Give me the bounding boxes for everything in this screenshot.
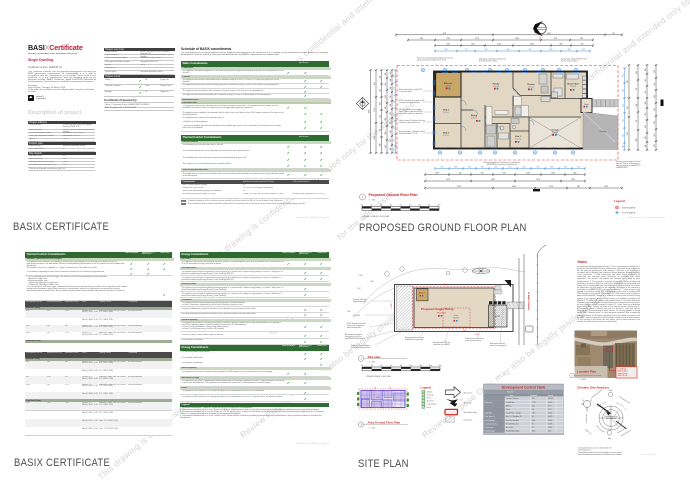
svg-text:4171: 4171 [443, 33, 447, 35]
svg-text:516: 516 [394, 139, 396, 142]
svg-text:1247: 1247 [554, 38, 558, 40]
svg-text:1 : 100: 1 : 100 [369, 428, 375, 430]
svg-text:1118: 1118 [446, 38, 450, 40]
svg-text:20.61 m2: 20.61 m2 [493, 86, 499, 88]
svg-text:344: 344 [385, 73, 387, 76]
svg-text:344: 344 [390, 104, 392, 107]
svg-text:4.0: 4.0 [532, 409, 534, 411]
svg-text:Drawing Template: Drawing Template [641, 453, 656, 456]
svg-text:1032: 1032 [435, 173, 439, 175]
svg-text:114.8: 114.8 [359, 275, 363, 277]
svg-text:387: 387 [390, 112, 392, 115]
svg-text:1 : 5000: 1 : 5000 [579, 379, 586, 381]
svg-text:14.4%: 14.4% [548, 427, 553, 429]
svg-text:4816: 4816 [547, 33, 551, 35]
svg-text:946: 946 [485, 49, 488, 51]
svg-text:Alfresco: Alfresco [444, 82, 453, 85]
svg-text:Hot Summer Sun: Hot Summer Sun [618, 395, 630, 404]
svg-text:301: 301 [623, 145, 625, 148]
svg-text:3.7%: 3.7% [548, 405, 552, 407]
svg-text:NOTE: Stormwater drain pipes a: NOTE: Stormwater drain pipes as laid [399, 99, 424, 102]
svg-text:516: 516 [654, 83, 656, 86]
svg-text:RL 114.86: RL 114.86 [353, 315, 360, 317]
svg-text:4m: 4m [380, 365, 383, 367]
svg-text:817: 817 [627, 106, 629, 109]
svg-text:1118: 1118 [446, 44, 450, 46]
svg-text:559: 559 [468, 167, 471, 169]
svg-text:PENNSYLVANIA ST: PENNSYLVANIA ST [528, 291, 531, 310]
svg-text:559: 559 [654, 121, 656, 124]
svg-text:SMOKE ALARM: SMOKE ALARM [622, 206, 636, 209]
svg-text:FFL 115.250: FFL 115.250 [437, 313, 446, 315]
svg-text:0.5: 0.5 [532, 416, 534, 418]
svg-text:Fence: Fence [427, 398, 432, 400]
svg-text:Storm flow: Storm flow [464, 402, 473, 405]
svg-text:5m: 5m [409, 204, 412, 206]
svg-text:1204: 1204 [497, 44, 501, 46]
svg-text:1.0%: 1.0% [548, 409, 552, 411]
svg-text:1032: 1032 [551, 173, 555, 175]
svg-text:Dining: Dining [471, 115, 478, 117]
svg-text:Bed 2: Bed 2 [443, 133, 449, 135]
svg-text:559: 559 [380, 89, 382, 92]
svg-text:1118: 1118 [374, 108, 376, 111]
svg-text:1m: 1m [370, 204, 373, 206]
svg-text:387: 387 [390, 95, 392, 98]
svg-text:559: 559 [645, 125, 647, 128]
svg-text:375: 375 [532, 398, 535, 400]
svg-text:559: 559 [394, 113, 396, 116]
svg-text:602: 602 [385, 132, 387, 135]
svg-text:Garage: Garage [552, 130, 560, 132]
svg-text:9.72 m2: 9.72 m2 [443, 135, 449, 137]
svg-text:946: 946 [529, 49, 532, 51]
svg-text:Paved area: Paved area [464, 418, 473, 421]
svg-text:Rainwater tank 3009L min: Rainwater tank 3009L min [433, 341, 451, 344]
svg-text:VISUAL SCALE 1:200 @A3: VISUAL SCALE 1:200 @A3 [366, 375, 392, 378]
svg-text:731: 731 [612, 33, 615, 35]
svg-text:Exterior: Exterior [507, 390, 514, 393]
svg-text:9am: 9am [608, 438, 612, 440]
svg-text:114.5: 114.5 [347, 311, 351, 313]
svg-text:559: 559 [380, 115, 382, 118]
svg-text:14m: 14m [419, 365, 423, 367]
svg-text:50.6%: 50.6% [548, 413, 553, 415]
svg-text:688: 688 [568, 49, 571, 51]
svg-text:114.8: 114.8 [443, 284, 447, 286]
svg-text:516: 516 [394, 75, 396, 78]
svg-text:602: 602 [495, 167, 498, 169]
svg-text:387: 387 [390, 130, 392, 133]
svg-text:387: 387 [645, 136, 647, 139]
svg-text:258: 258 [390, 72, 392, 75]
svg-text:2064: 2064 [515, 38, 519, 40]
svg-text:1118: 1118 [526, 173, 530, 175]
svg-text:387: 387 [385, 106, 387, 109]
svg-text:Refreshing fitting - 1.5 bagge: Refreshing fitting - 1.5 bagged in touch [399, 130, 425, 133]
svg-text:1978: 1978 [536, 179, 540, 181]
svg-text:Climatic Site Analysis: Climatic Site Analysis [577, 386, 609, 390]
svg-text:387: 387 [654, 144, 656, 147]
svg-text:114.6: 114.6 [370, 281, 374, 283]
svg-text:10m: 10m [409, 365, 413, 367]
svg-text:559: 559 [380, 102, 382, 105]
svg-text:645: 645 [636, 71, 638, 74]
svg-text:Porch: Porch [427, 406, 431, 409]
svg-text:18m: 18m [429, 365, 433, 367]
svg-text:946: 946 [507, 49, 510, 51]
svg-text:946: 946 [481, 173, 484, 175]
svg-text:Master Bed: Master Bed [567, 83, 579, 86]
svg-text:6m: 6m [419, 204, 422, 206]
svg-text:30.0: 30.0 [463, 330, 466, 332]
svg-text:Prevailing west of hot: Prevailing west of hot [605, 415, 618, 418]
svg-text:559: 559 [577, 167, 580, 169]
svg-text:54: 54 [532, 427, 534, 429]
svg-text:Landscaping: Landscaping [427, 404, 436, 406]
svg-text:946: 946 [581, 44, 584, 46]
svg-text:VISUAL SCALE 1:100 @A3: VISUAL SCALE 1:100 @A3 [362, 215, 390, 218]
svg-text:2m: 2m [371, 365, 374, 367]
svg-text:1161: 1161 [374, 82, 376, 86]
svg-text:387: 387 [645, 68, 647, 71]
svg-text:The shaded site area to be con: The shaded site area to be considered wi… [578, 447, 611, 450]
svg-text:344: 344 [645, 145, 647, 148]
svg-text:645: 645 [623, 134, 625, 137]
svg-text:516: 516 [645, 91, 647, 94]
svg-text:Hot west sun: Hot west sun [585, 414, 588, 423]
svg-text:559: 559 [385, 145, 387, 148]
svg-text:3: 3 [360, 425, 362, 427]
svg-text:Proposed dropped floor connect: Proposed dropped floor connection to sui… [484, 161, 521, 164]
svg-text:559: 559 [654, 70, 656, 73]
svg-text:Storm line: Storm line [427, 400, 434, 403]
svg-text:1 : 200: 1 : 200 [369, 362, 375, 364]
svg-text:645: 645 [623, 89, 625, 92]
svg-text:Theatre: Theatre [527, 83, 535, 86]
svg-text:1376: 1376 [549, 186, 553, 188]
svg-text:Porch: Porch [584, 103, 588, 106]
svg-text:Road No 06111: Road No 06111 [618, 371, 628, 373]
svg-text:9.72 m2: 9.72 m2 [443, 112, 449, 114]
svg-text:3569: 3569 [369, 110, 371, 114]
svg-text:516: 516 [385, 83, 387, 86]
svg-text:Bed 3: Bed 3 [443, 110, 449, 112]
svg-text:Cold Winter Winds: Cold Winter Winds [590, 389, 602, 400]
svg-text:94: 94 [532, 423, 534, 425]
svg-text:Legend: Legend [614, 199, 625, 203]
svg-text:860: 860 [550, 49, 553, 51]
svg-text:prevailing breezes.: prevailing breezes. [578, 450, 592, 452]
svg-text:860: 860 [574, 173, 577, 175]
svg-text:1419: 1419 [627, 80, 629, 84]
svg-text:Fitting / framing 42 concrete,: Fitting / framing 42 concrete, with step… [399, 119, 425, 122]
svg-text:4.5: 4.5 [460, 400, 462, 402]
svg-text:10m: 10m [437, 204, 441, 206]
svg-text:0m: 0m [361, 365, 364, 367]
svg-text:Notes: Notes [578, 260, 588, 264]
svg-text:14.24 m2: 14.24 m2 [445, 85, 451, 87]
svg-text:8m: 8m [428, 204, 431, 206]
svg-text:Legend: Legend [421, 386, 432, 390]
svg-text:Proposed 1.8m high: Proposed 1.8m high [353, 298, 367, 301]
svg-text:774: 774 [636, 88, 638, 91]
svg-text:2924: 2924 [457, 186, 461, 188]
svg-text:559: 559 [564, 167, 567, 169]
svg-text:387: 387 [390, 139, 392, 142]
svg-text:774: 774 [636, 120, 638, 123]
svg-text:301: 301 [394, 148, 396, 151]
svg-text:Driveway: Driveway [600, 130, 607, 133]
svg-text:989: 989 [580, 38, 583, 40]
svg-text:559: 559 [394, 87, 396, 90]
svg-text:14.2: 14.2 [532, 405, 535, 407]
svg-text:1419: 1419 [627, 132, 629, 136]
svg-text:559: 559 [394, 126, 396, 129]
svg-text:559: 559 [394, 100, 396, 103]
svg-text:1: 1 [362, 195, 364, 199]
svg-text:Proposed crossing subject to c: Proposed crossing subject to council [616, 160, 641, 163]
svg-text:NOTE: Proposed cut and fill: NOTE: Proposed cut and fill [347, 322, 366, 325]
svg-text:516: 516 [654, 134, 656, 137]
svg-text:6m: 6m [390, 365, 393, 367]
svg-text:559: 559 [582, 49, 585, 51]
svg-text:Grass: Grass [454, 315, 458, 317]
svg-text:100.0%: 100.0% [548, 398, 554, 400]
svg-text:FLOOR WASTE: FLOOR WASTE [622, 212, 636, 215]
svg-text:1634: 1634 [530, 44, 534, 46]
svg-text:1032: 1032 [471, 44, 475, 46]
svg-text:774: 774 [465, 49, 468, 51]
svg-text:860: 860 [560, 44, 563, 46]
svg-text:Site plan: Site plan [368, 355, 381, 359]
svg-text:190: 190 [532, 413, 535, 415]
svg-text:Remove the existing boundary &: Remove the existing boundary & Masonry t… [417, 57, 453, 60]
svg-text:114.2: 114.2 [357, 288, 361, 290]
svg-text:Setback: Setback [427, 391, 433, 394]
svg-text:2: 2 [571, 375, 573, 377]
svg-text:1 : 100: 1 : 100 [369, 200, 376, 202]
svg-text:U 175: U 175 [391, 303, 393, 308]
svg-text:12.15 m2: 12.15 m2 [528, 86, 534, 88]
svg-text:Site of New home: Site of New home [464, 411, 477, 414]
svg-text:45.7%: 45.7% [548, 402, 553, 404]
svg-text:Proposed retaining wall max: Proposed retaining wall max [405, 336, 424, 339]
svg-text:559: 559 [654, 108, 656, 111]
svg-text:344: 344 [390, 148, 392, 151]
svg-text:All electrical outlets as note: All electrical outlets as noted 07/07 [399, 88, 422, 91]
svg-text:Summer Breeze: Summer Breeze [621, 430, 632, 438]
svg-text:Min 24 m2: Min 24 m2 [506, 427, 513, 429]
svg-text:8m: 8m [400, 365, 403, 367]
svg-text:Garage walls adjusted 90mm FR: Garage walls adjusted 90mm FR 13.2 [561, 58, 587, 61]
svg-text:14.61 m2: 14.61 m2 [570, 86, 576, 88]
svg-text:10.12 m2: 10.12 m2 [515, 138, 521, 140]
svg-text:0m: 0m [361, 204, 364, 206]
svg-text:516: 516 [645, 79, 647, 82]
svg-text:1290: 1290 [374, 136, 376, 140]
svg-text:171.7: 171.7 [532, 402, 536, 404]
svg-text:602: 602 [509, 167, 512, 169]
svg-text:559: 559 [654, 95, 656, 98]
svg-text:602: 602 [523, 167, 526, 169]
svg-text:946: 946 [503, 173, 506, 175]
svg-text:602: 602 [455, 167, 458, 169]
svg-text:Winter Sun: Winter Sun [584, 428, 592, 435]
svg-text:559: 559 [385, 95, 387, 98]
svg-text:Driveway: Driveway [427, 394, 434, 397]
svg-text:25.0%: 25.0% [548, 423, 553, 425]
svg-text:Sliding glass sliding door wit: Sliding glass sliding door with flush 13… [479, 58, 506, 61]
svg-text:989: 989 [577, 186, 580, 188]
svg-text:860: 860 [636, 139, 638, 142]
svg-text:50.6%: 50.6% [548, 416, 553, 418]
svg-text:3m: 3m [390, 204, 393, 206]
svg-text:20m: 20m [438, 365, 442, 367]
svg-text:946: 946 [445, 49, 448, 51]
svg-text:430: 430 [645, 102, 647, 105]
svg-text:New layback kerb and: New layback kerb and [490, 342, 505, 345]
svg-text:602: 602 [636, 104, 638, 107]
svg-text:10.85 m2: 10.85 m2 [471, 117, 477, 119]
svg-text:2m: 2m [380, 204, 383, 206]
svg-text:12pm: 12pm [609, 390, 614, 392]
svg-text:688: 688 [380, 144, 382, 147]
svg-text:1376: 1376 [475, 38, 479, 40]
svg-text:54.0 m2: 54.0 m2 [453, 318, 459, 320]
svg-text:Location Plan: Location Plan [577, 370, 596, 374]
svg-text:559: 559 [481, 167, 484, 169]
svg-text:516: 516 [645, 113, 647, 116]
svg-text:602: 602 [537, 167, 540, 169]
svg-text:All stormwater drainage to: All stormwater drainage to [345, 333, 363, 336]
svg-text:645: 645 [623, 119, 625, 122]
svg-text:Area Ground Floor Plan: Area Ground Floor Plan [368, 421, 401, 425]
svg-text:1376: 1376 [604, 186, 608, 188]
svg-text:Proposed Single Storey: Proposed Single Storey [421, 307, 454, 311]
svg-text:Development Control Table: Development Control Table [502, 386, 546, 390]
svg-text:344: 344 [390, 79, 392, 82]
svg-text:344: 344 [390, 87, 392, 90]
svg-text:4m: 4m [399, 204, 402, 206]
svg-text:50.6%: 50.6% [548, 420, 553, 422]
svg-text:Family: Family [493, 84, 500, 86]
svg-text:Site access: Site access [464, 391, 473, 394]
svg-text:645: 645 [623, 74, 625, 77]
svg-text:1: 1 [360, 358, 362, 361]
svg-text:946: 946 [459, 173, 462, 175]
svg-text:602: 602 [441, 167, 444, 169]
svg-text:1161: 1161 [420, 38, 424, 40]
svg-text:602: 602 [385, 118, 387, 121]
svg-text:1032: 1032 [571, 179, 575, 181]
svg-text:602: 602 [380, 129, 382, 132]
svg-text:1978: 1978 [446, 179, 450, 181]
svg-text:602: 602 [551, 167, 554, 169]
svg-text:602: 602 [380, 76, 382, 79]
svg-text:90/67 weep holes screen. Handl: 90/67 weep holes screen. Handle [399, 108, 421, 111]
svg-text:159.9: 159.9 [376, 397, 380, 399]
svg-text:Proposed concrete driveway: Proposed concrete driveway [465, 337, 484, 340]
svg-text:Proposed 1.8m high lapped: Proposed 1.8m high lapped [351, 344, 370, 347]
svg-text:387: 387 [390, 121, 392, 124]
svg-text:Bed 1: Bed 1 [515, 136, 521, 138]
svg-text:1892: 1892 [491, 179, 495, 181]
svg-text:36.54 m2: 36.54 m2 [552, 132, 558, 134]
svg-text:Proposed Ground Floor Plan: Proposed Ground Floor Plan [369, 193, 418, 197]
svg-text:645: 645 [623, 104, 625, 107]
svg-text:1806: 1806 [512, 186, 516, 188]
